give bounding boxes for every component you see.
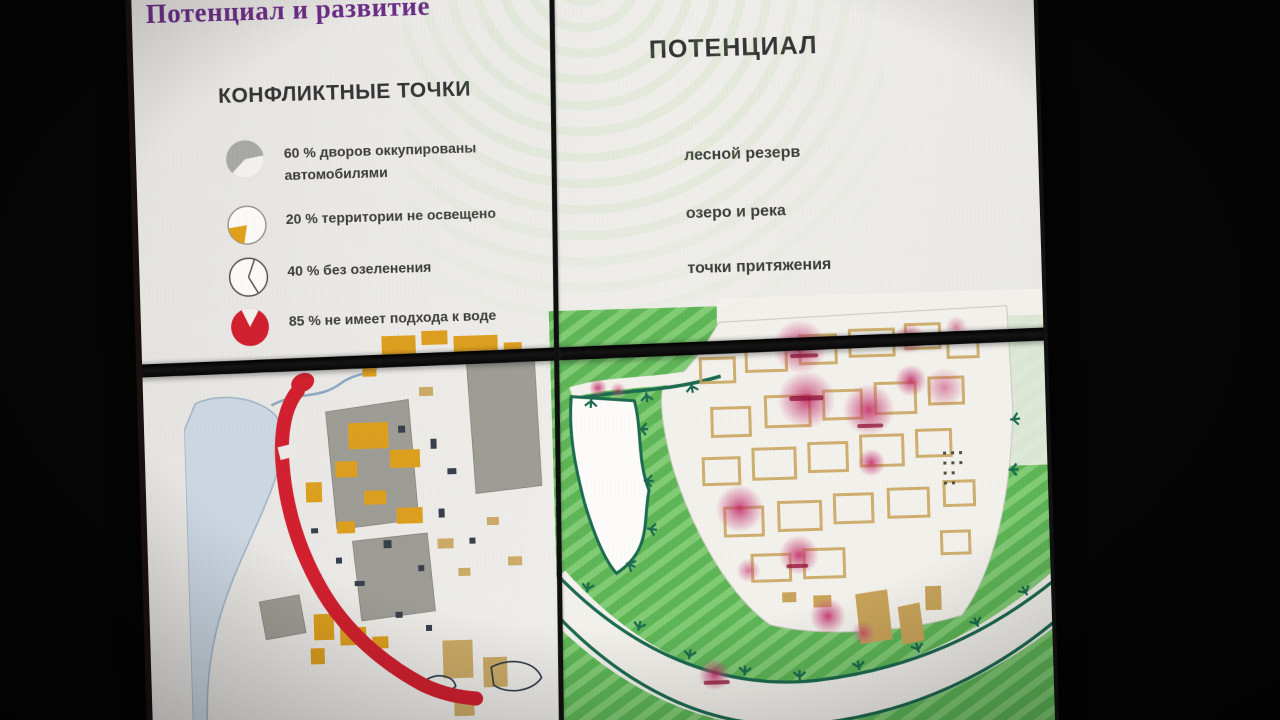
video-wall: Потенциал и развитие КОНФЛИКТНЫЕ ТОЧКИ 6… <box>124 0 1060 720</box>
photo-of-video-wall: Потенциал и развитие КОНФЛИКТНЫЕ ТОЧКИ 6… <box>0 0 1280 720</box>
